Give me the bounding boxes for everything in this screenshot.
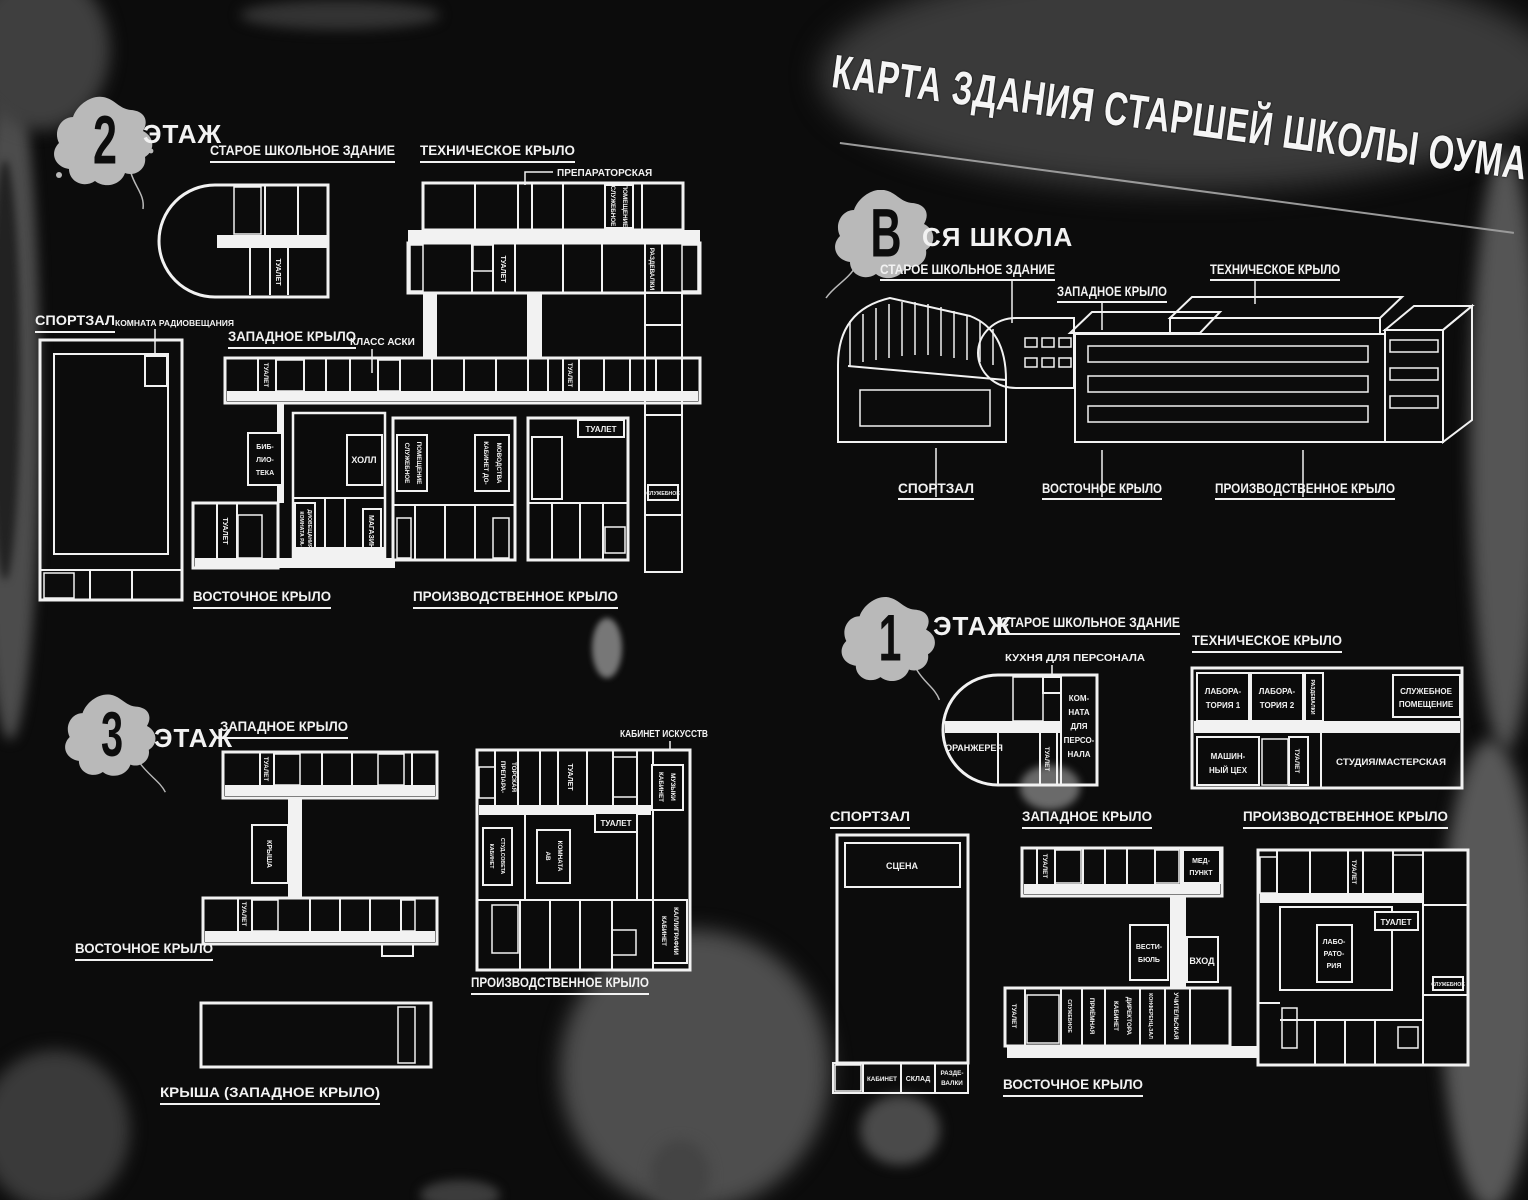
room-label-toilet: ТУАЛЕТ xyxy=(262,757,269,782)
callout-art-room: КАБИНЕТ ИСКУССТВ xyxy=(620,729,708,740)
label-prod-wing: ПРОИЗВОДСТВЕННОЕ КРЫЛО xyxy=(1215,480,1395,496)
room-label-service: СЛУЖЕБНОЕ xyxy=(609,186,616,227)
room-label-toilet: ТУАЛЕТ xyxy=(262,363,269,388)
room-label-lab: РАТО- xyxy=(1324,951,1345,958)
label-west-wing: ЗАПАДНОЕ КРЫЛО xyxy=(1057,283,1167,299)
room-label-principal: КАБИНЕТ xyxy=(1112,1001,1119,1031)
floor3-roof: КРЫША (ЗАПАДНОЕ КРЫЛО) xyxy=(160,1003,431,1105)
floor1-lobby: ВЕСТИ- БЮЛЬ ВХОД xyxy=(1130,896,1218,988)
room-label-service-small: СЛУЖЕБНОЕ xyxy=(646,491,680,497)
room-label-prep: ПРЕПАРА- xyxy=(499,761,506,793)
room-label-library: ЛИО- xyxy=(256,457,274,464)
floor2-badge: 2 ЭТАЖ xyxy=(54,97,222,209)
floor1-east-wing: ТУАЛЕТ СЛУЖЕБНОЕ ПРИЁМНАЯ КАБИНЕТ ДИРЕКТ… xyxy=(1003,988,1287,1097)
room-label-conference: КОНФЕРЕНЦ-ЗАЛ xyxy=(1147,993,1153,1039)
heading-prod-wing: ПРОИЗВОДСТВЕННОЕ КРЫЛО xyxy=(413,588,618,604)
floor1-number: 1 xyxy=(879,601,902,675)
heading-east-wing: ВОСТОЧНОЕ КРЫЛО xyxy=(75,940,213,956)
heading-old-building: СТАРОЕ ШКОЛЬНОЕ ЗДАНИЕ xyxy=(210,142,395,158)
room-label-radio-room: ДИОВЕЩАНИЯ xyxy=(306,510,312,549)
heading-roof-west: КРЫША (ЗАПАДНОЕ КРЫЛО) xyxy=(160,1084,380,1100)
room-label-hall: ХОЛЛ xyxy=(351,455,376,465)
room-label-lab2: ЛАБОРА- xyxy=(1259,687,1296,696)
callout-staff-kitchen: КУХНЯ ДЛЯ ПЕРСОНАЛА xyxy=(1005,653,1145,664)
floor2-plan: 2 ЭТАЖ СТАРОЕ ШКОЛЬНОЕ ЗДАНИЕ ТУАЛЕТ ТЕХ… xyxy=(20,85,720,630)
room-label-office: КАБИНЕТ xyxy=(867,1076,897,1083)
callout-radio-room: КОМНАТА РАДИОВЕЩАНИЯ xyxy=(115,318,234,328)
room-label-radio-room: КОМНАТА РА- xyxy=(298,511,304,547)
room-label-toilet: ТУАЛЕТ xyxy=(1041,854,1048,879)
room-label-library: БИБ- xyxy=(256,444,274,451)
floor1-west-wing: ТУАЛЕТ МЕД- ПУНКТ xyxy=(1022,848,1222,896)
floor2-west-wing: ЗАПАДНОЕ КРЫЛО КЛАСС АСКИ ТУАЛЕТ ТУАЛЕТ xyxy=(225,328,700,403)
room-label-toilet: ТУАЛЕТ xyxy=(499,255,506,283)
room-label-toilet: ТУАЛЕТ xyxy=(240,902,247,927)
floor3-plan: 3 ЭТАЖ ЗАПАДНОЕ КРЫЛО ТУАЛЕТ КРЫША ТУАЛЕ… xyxy=(60,685,720,1130)
room-label-staff-room: НАЛА xyxy=(1067,750,1090,759)
room-label-lockers: РАЗДЕВАЛКИ xyxy=(648,248,655,291)
heading-tech-wing: ТЕХНИЧЕСКОЕ КРЫЛО xyxy=(420,142,575,158)
heading-old-building: СТАРОЕ ШКОЛЬНОЕ ЗДАНИЕ xyxy=(1000,614,1180,630)
room-label-staff-room: ПЕРСО- xyxy=(1064,736,1095,745)
floor1-tech-wing: ТЕХНИЧЕСКОЕ КРЫЛО ЛАБОРА- ТОРИЯ 1 ЛАБОРА… xyxy=(1192,632,1462,788)
room-label-council: СТУД.СОВЕТА xyxy=(499,838,505,875)
room-label-lobby: БЮЛЬ xyxy=(1138,957,1160,964)
room-label-med: МЕД- xyxy=(1192,858,1210,865)
room-label-library: ТЕКА xyxy=(256,470,274,477)
whole-school-badge: В СЯ ШКОЛА xyxy=(826,190,1073,298)
room-label-toilet: ТУАЛЕТ xyxy=(1350,860,1357,885)
room-label-staff-room: НАТА xyxy=(1068,708,1090,717)
whole-school-label: СЯ ШКОЛА xyxy=(922,222,1073,252)
heading-east-wing: ВОСТОЧНОЕ КРЫЛО xyxy=(1003,1076,1143,1092)
room-label-roof: КРЫША xyxy=(265,840,272,868)
room-label-lobby: ВЕСТИ- xyxy=(1136,944,1163,951)
room-label-reception: ПРИЁМНАЯ xyxy=(1088,998,1096,1035)
room-label-music: МУЗЫКИ xyxy=(669,773,676,801)
room-label-studio: СТУДИЯ/МАСТЕРСКАЯ xyxy=(1336,757,1446,767)
floor3-badge: 3 ЭТАЖ xyxy=(65,694,233,792)
whole-school-view: В СЯ ШКОЛА СТАРОЕ ШКОЛЬНОЕ ЗДАНИЕ ЗАПАДН… xyxy=(820,190,1480,520)
floor3-east-wing: ТУАЛЕТ ВОСТОЧНОЕ КРЫЛО xyxy=(75,898,437,961)
room-label-machine-shop: МАШИН- xyxy=(1211,752,1246,761)
room-label-toilet: ТУАЛЕТ xyxy=(1293,749,1300,774)
room-label-toilet: ТУАЛЕТ xyxy=(601,819,632,828)
callout-preparatory: ПРЕПАРАТОРСКАЯ xyxy=(557,168,652,179)
floor1-prod-wing: ТУАЛЕТ ТУАЛЕТ ЛАБО- РАТО- РИЯ СЛУЖЕБНОЕ xyxy=(1258,850,1468,1065)
room-label-teachers: УЧИТЕЛЬСКАЯ xyxy=(1172,992,1179,1040)
callout-aski-class: КЛАСС АСКИ xyxy=(350,337,415,348)
room-label-changing: ВАЛКИ xyxy=(941,1080,963,1087)
room-label-toilet: ТУАЛЕТ xyxy=(586,425,617,434)
room-label-stage: СЦЕНА xyxy=(886,861,919,871)
room-label-staff-room: КОМ- xyxy=(1069,694,1090,703)
heading-tech-wing: ТЕХНИЧЕСКОЕ КРЫЛО xyxy=(1192,632,1342,648)
room-label-toilet: ТУАЛЕТ xyxy=(1381,918,1412,927)
room-label-service: ПОМЕЩЕНИЕ xyxy=(621,185,628,228)
floor1-badge: 1 ЭТАЖ xyxy=(842,597,1012,700)
room-label-lab: ЛАБО- xyxy=(1323,939,1346,946)
floor2-old-building: СТАРОЕ ШКОЛЬНОЕ ЗДАНИЕ ТУАЛЕТ xyxy=(159,142,395,297)
room-label-service: СЛУЖЕБНОЕ xyxy=(403,443,410,484)
room-label-home-econ: МОВОДСТВА xyxy=(495,443,502,484)
room-label-lab2: ТОРИЯ 2 xyxy=(1260,701,1295,710)
room-label-service: СЛУЖЕБНОЕ xyxy=(1400,687,1452,696)
room-label-home-econ: КАБИНЕТ ДО- xyxy=(482,441,489,484)
heading-west-wing: ЗАПАДНОЕ КРЫЛО xyxy=(1022,808,1152,824)
floor3-prod-wing: КАБИНЕТ ИСКУССТВ ПРЕПАРА- ТОРСКАЯ ТУАЛЕТ… xyxy=(471,729,708,995)
room-label-toilet: ТУАЛЕТ xyxy=(1010,1004,1017,1029)
section-floor2: 2 ЭТАЖ СТАРОЕ ШКОЛЬНОЕ ЗДАНИЕ ТУАЛЕТ ТЕХ… xyxy=(20,85,720,635)
heading-west-wing: ЗАПАДНОЕ КРЫЛО xyxy=(228,328,356,344)
room-label-toilet: ТУАЛЕТ xyxy=(221,517,228,545)
room-label-service: ПОМЕЩЕНИЕ xyxy=(1399,700,1454,709)
room-label-staff-room: ДЛЯ xyxy=(1070,722,1087,731)
room-label-calligraphy: КАЛЛИГРАФИИ xyxy=(672,907,679,955)
heading-prod-wing: ПРОИЗВОДСТВЕННОЕ КРЫЛО xyxy=(1243,808,1448,824)
heading-prod-wing: ПРОИЗВОДСТВЕННОЕ КРЫЛО xyxy=(471,974,649,990)
room-label-toilet: ТУАЛЕТ xyxy=(274,258,281,286)
floor1-gym: СЦЕНА КАБИНЕТ СКЛАД РАЗДЕ- ВАЛКИ xyxy=(833,835,968,1093)
room-label-toilet: ТУАЛЕТ xyxy=(1043,747,1050,772)
room-label-prep: ТОРСКАЯ xyxy=(510,762,517,793)
heading-gym: СПОРТЗАЛ xyxy=(35,312,115,328)
room-label-med: ПУНКТ xyxy=(1189,870,1213,877)
room-label-lab1: ТОРИЯ 1 xyxy=(1206,701,1241,710)
room-label-council: КАБИНЕТ xyxy=(488,844,494,870)
section-whole-school: В СЯ ШКОЛА СТАРОЕ ШКОЛЬНОЕ ЗДАНИЕ ЗАПАДН… xyxy=(820,190,1480,525)
room-label-service-small: СЛУЖЕБНОЕ xyxy=(1431,982,1465,988)
floor2-number: 2 xyxy=(93,103,117,180)
heading-east-wing: ВОСТОЧНОЕ КРЫЛО xyxy=(193,588,331,604)
label-tech-wing: ТЕХНИЧЕСКОЕ КРЫЛО xyxy=(1210,261,1340,277)
floor2-prod-wing: СЛУЖЕБНОЕ ПОМЕЩЕНИЕ КАБИНЕТ ДО- МОВОДСТВ… xyxy=(393,418,628,609)
room-label-service: СЛУЖЕБНОЕ xyxy=(1066,999,1072,1033)
room-label-orangery: ОРАНЖЕРЕЯ xyxy=(945,743,1003,753)
section-floor1: 1 ЭТАЖ СТАРОЕ ШКОЛЬНОЕ ЗДАНИЕ КУХНЯ ДЛЯ … xyxy=(815,575,1525,1140)
room-label-entrance: ВХОД xyxy=(1189,956,1215,966)
room-label-machine-shop: НЫЙ ЦЕХ xyxy=(1209,766,1248,775)
room-label-toilet: ТУАЛЕТ xyxy=(566,763,573,791)
room-label-changing: РАЗДЕ- xyxy=(941,1070,964,1077)
heading-west-wing: ЗАПАДНОЕ КРЫЛО xyxy=(220,718,348,734)
heading-gym: СПОРТЗАЛ xyxy=(830,808,910,824)
label-old-building: СТАРОЕ ШКОЛЬНОЕ ЗДАНИЕ xyxy=(880,261,1055,277)
room-label-toilet: ТУАЛЕТ xyxy=(566,363,573,388)
room-label-storage: СКЛАД xyxy=(906,1076,931,1083)
room-label-service: ПОМЕЩЕНИЕ xyxy=(415,442,422,485)
room-label-calligraphy: КАБИНЕТ xyxy=(660,916,667,946)
section-floor3: 3 ЭТАЖ ЗАПАДНОЕ КРЫЛО ТУАЛЕТ КРЫША ТУАЛЕ… xyxy=(60,685,720,1135)
room-label-av: КОМНАТА xyxy=(556,841,563,872)
room-label-music: КАБИНЕТ xyxy=(657,772,664,802)
floor3-number: 3 xyxy=(101,700,123,771)
room-label-lab: РИЯ xyxy=(1327,963,1342,970)
room-label-principal: ДИРЕКТОРА xyxy=(1125,997,1132,1036)
room-label-lab1: ЛАБОРА- xyxy=(1205,687,1242,696)
room-label-store: МАГАЗИН xyxy=(367,515,374,549)
whole-school-isometric-drawing xyxy=(838,297,1472,442)
floor3-west-wing: ЗАПАДНОЕ КРЫЛО ТУАЛЕТ КРЫША xyxy=(220,718,437,898)
map-canvas: КАРТА ЗДАНИЯ СТАРШЕЙ ШКОЛЫ ОУМА 2 ЭТАЖ С… xyxy=(0,0,1528,1200)
room-label-lockers: РАЗДЕВАЛКИ xyxy=(1309,680,1315,715)
floor1-plan: 1 ЭТАЖ СТАРОЕ ШКОЛЬНОЕ ЗДАНИЕ КУХНЯ ДЛЯ … xyxy=(815,575,1525,1135)
room-label-av: АВ xyxy=(544,851,551,861)
